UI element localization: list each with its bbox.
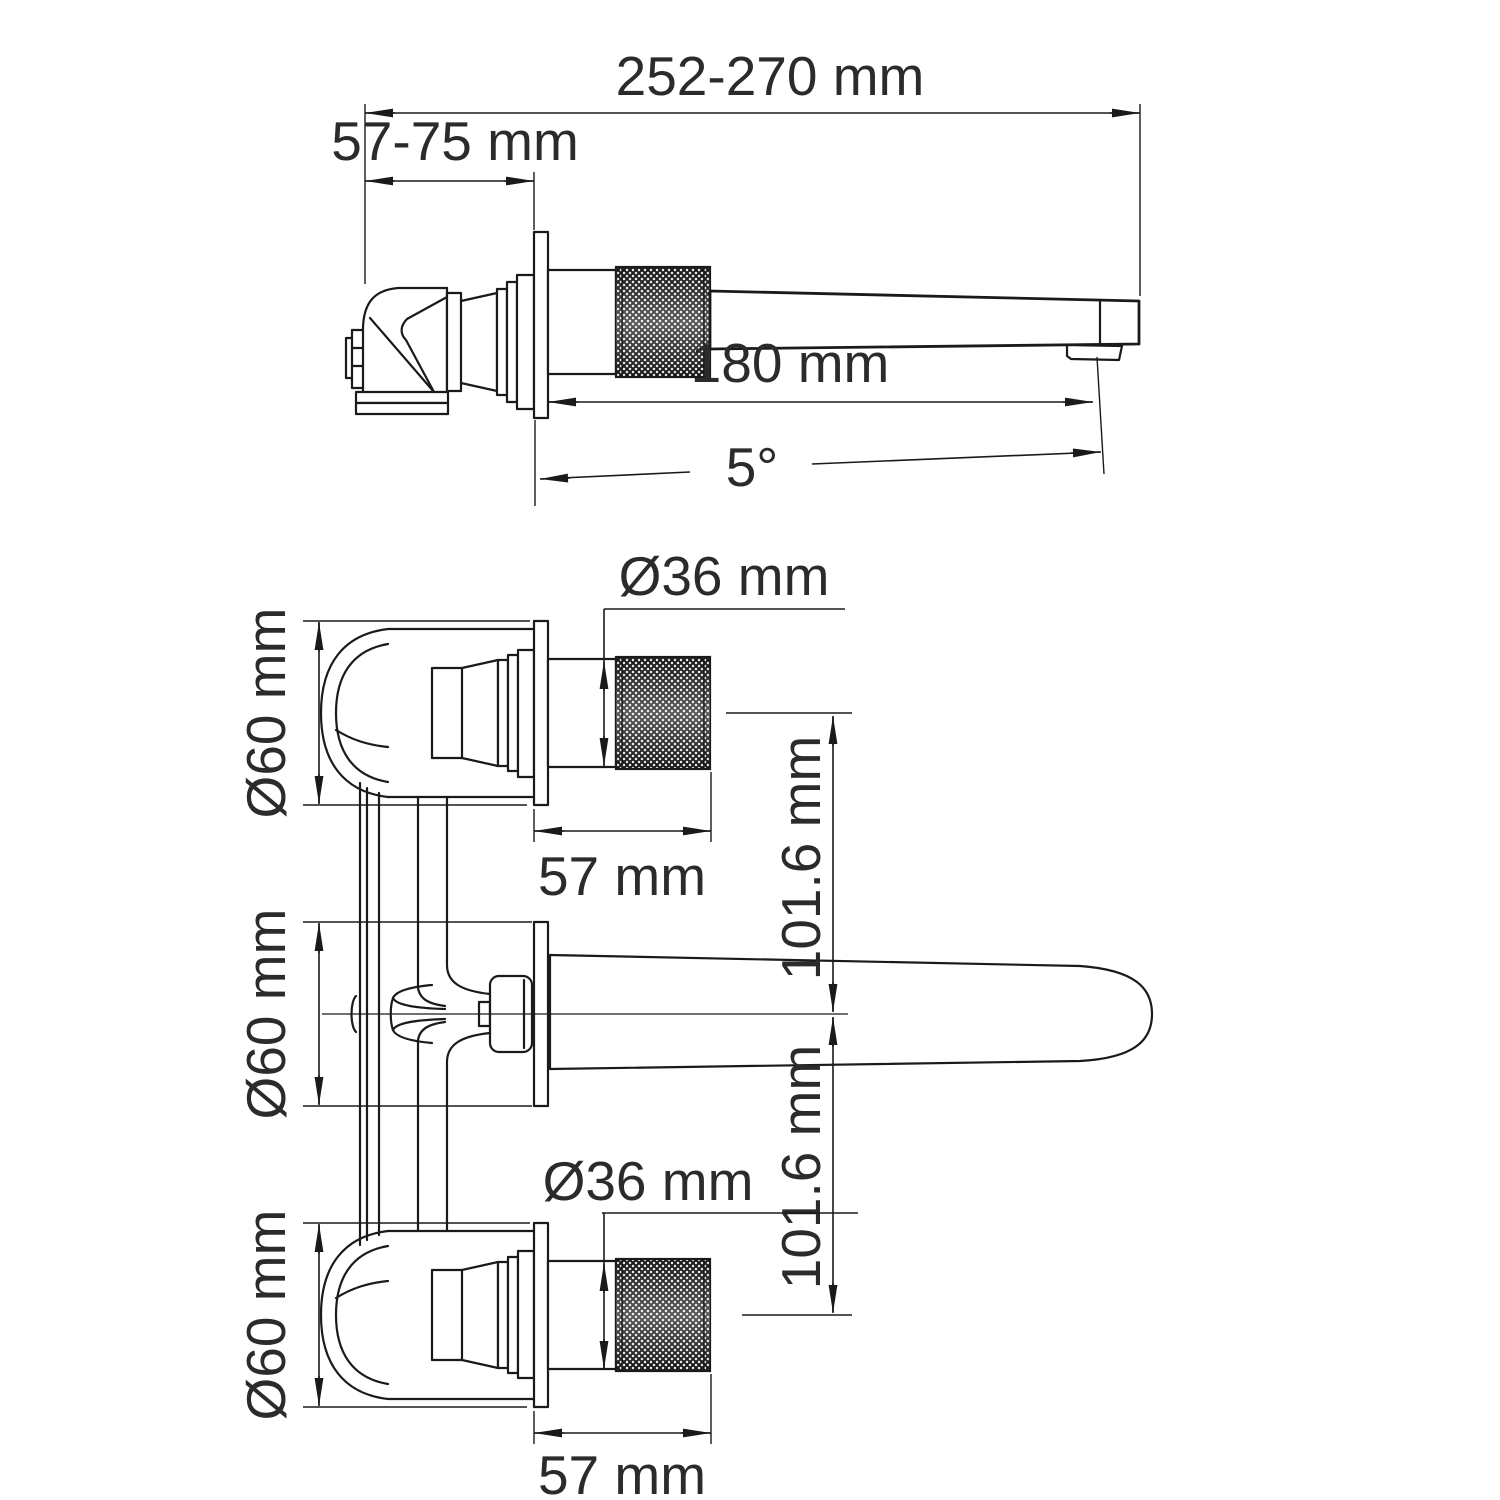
dim-handle-length-bottom-label: 57 mm	[538, 1444, 706, 1500]
dim-spout-length-label: 180 mm	[691, 332, 890, 394]
dim-spacing-top-label: 101.6 mm	[770, 736, 832, 981]
handle-collar-side	[548, 270, 616, 374]
spout-nozzle	[1067, 345, 1122, 360]
knurled-handle-top	[616, 657, 710, 769]
dim-spout-angle-label: 5°	[726, 436, 779, 498]
handle-collar-top	[548, 659, 616, 767]
wall-plate-bottom	[534, 1223, 548, 1407]
dim-handle-dia-bottom-label: Ø36 mm	[543, 1150, 754, 1212]
dim-plate-dia-bottom-label: Ø60 mm	[235, 1210, 297, 1421]
canvas-background	[0, 0, 1500, 1500]
spout-front	[550, 955, 1152, 1069]
dim-plate-dia-middle-label: Ø60 mm	[235, 909, 297, 1120]
faucet-technical-drawing: 252-270 mm 57-75 mm 180 mm 5°	[0, 0, 1500, 1500]
dim-handle-length-top-label: 57 mm	[538, 845, 706, 907]
wall-plate-side	[534, 232, 548, 418]
knurled-handle-bottom	[616, 1259, 710, 1371]
handle-collar-bottom	[548, 1261, 616, 1369]
wall-plate-top	[534, 621, 548, 805]
dim-handle-dia-top-label: Ø36 mm	[619, 545, 830, 607]
dim-total-depth-label: 252-270 mm	[616, 45, 925, 107]
dim-spacing-bottom-label: 101.6 mm	[770, 1045, 832, 1290]
dim-plate-dia-top-label: Ø60 mm	[235, 608, 297, 819]
dim-wall-depth-label: 57-75 mm	[331, 110, 579, 172]
